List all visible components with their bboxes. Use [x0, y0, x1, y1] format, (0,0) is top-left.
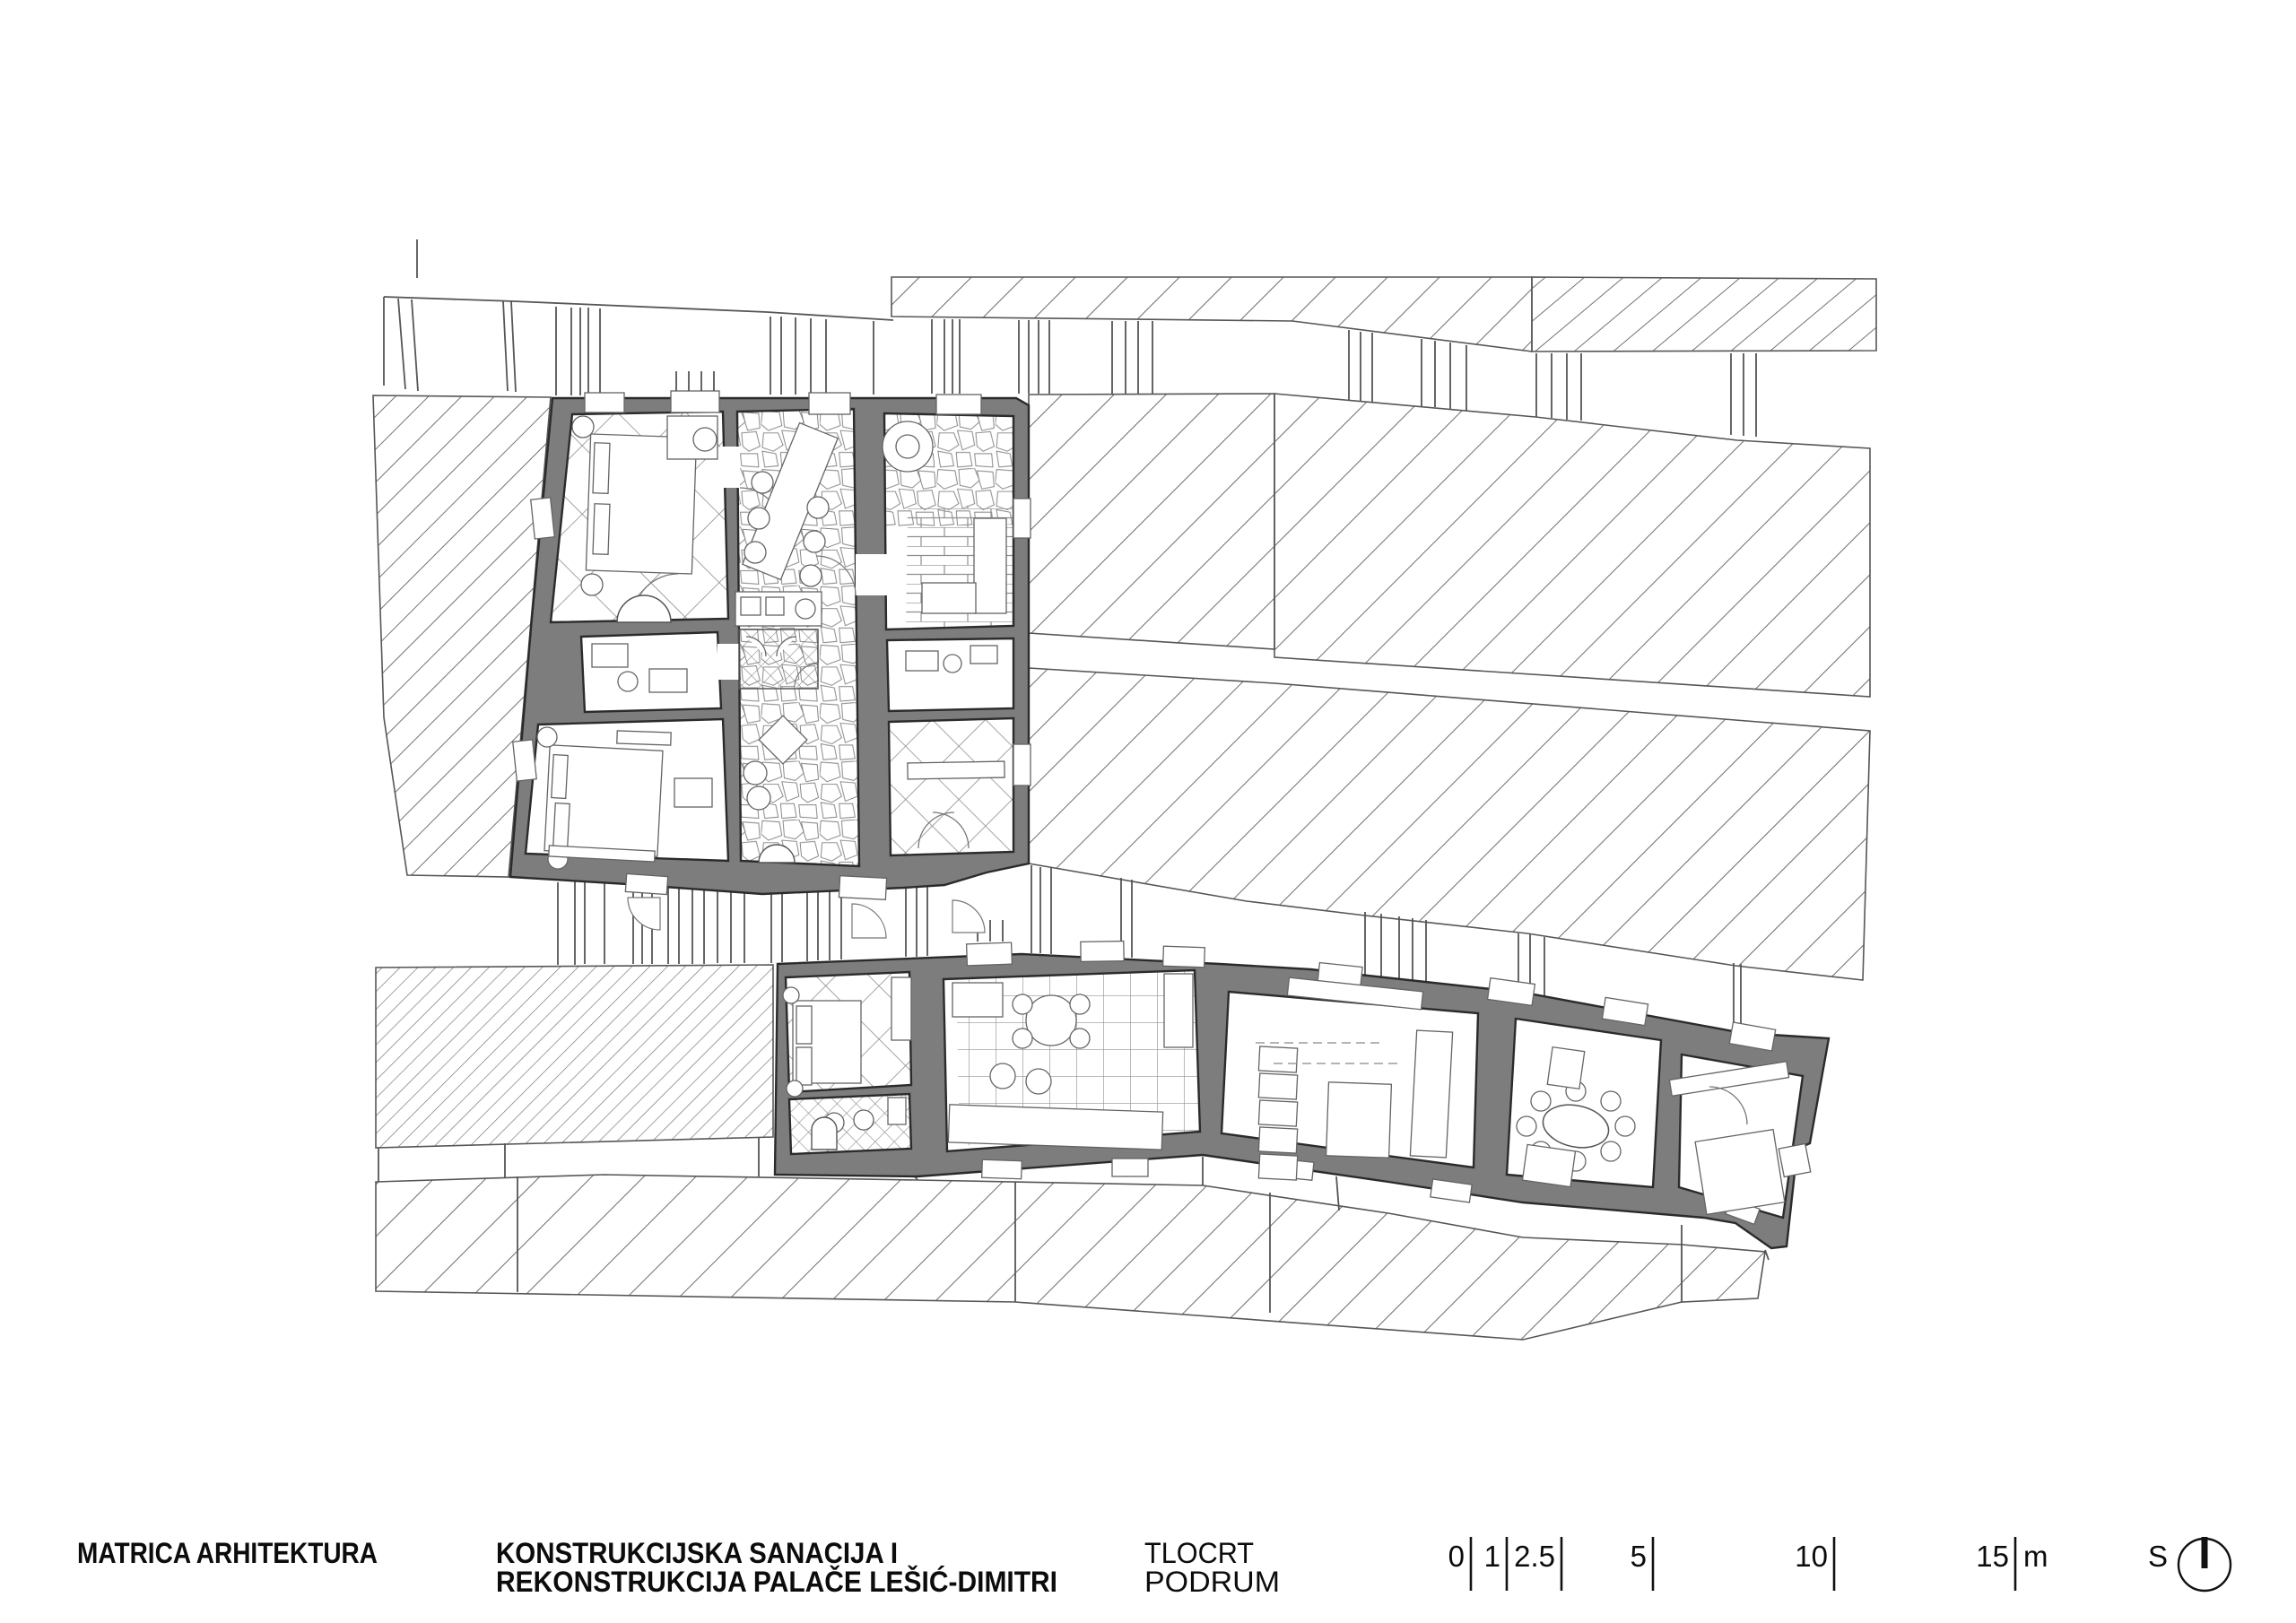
svg-text:TLOCRT: TLOCRT: [1144, 1537, 1254, 1569]
svg-text:1: 1: [1484, 1540, 1500, 1573]
svg-text:PODRUM: PODRUM: [1144, 1566, 1280, 1598]
svg-text:5: 5: [1631, 1540, 1647, 1573]
svg-text:0: 0: [1448, 1540, 1465, 1573]
svg-text:10: 10: [1795, 1540, 1828, 1573]
svg-text:m: m: [2023, 1540, 2048, 1573]
svg-text:2.5: 2.5: [1514, 1540, 1555, 1573]
svg-text:KONSTRUKCIJSKA SANACIJA I: KONSTRUKCIJSKA SANACIJA I: [496, 1537, 898, 1569]
svg-text:REKONSTRUKCIJA PALAČE LEŠIĆ-DI: REKONSTRUKCIJA PALAČE LEŠIĆ-DIMITRI: [496, 1566, 1057, 1598]
svg-text:MATRICA ARHITEKTURA: MATRICA ARHITEKTURA: [77, 1537, 378, 1569]
svg-text:S: S: [2148, 1540, 2168, 1573]
svg-text:15: 15: [1976, 1540, 2009, 1573]
